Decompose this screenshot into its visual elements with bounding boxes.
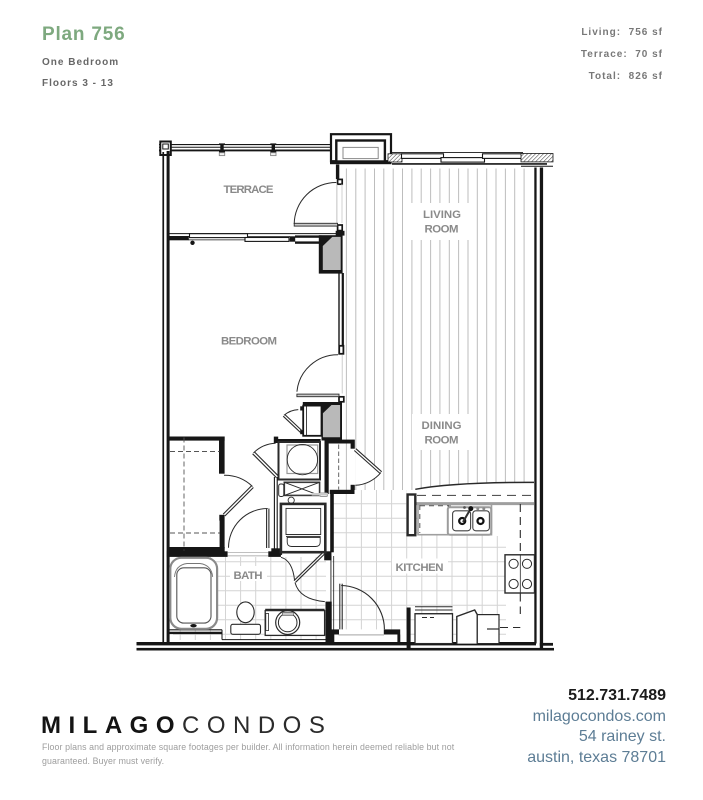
svg-text:DINING: DINING (422, 420, 462, 432)
svg-text:KITCHEN: KITCHEN (396, 562, 444, 574)
svg-text:ROOM: ROOM (425, 224, 459, 236)
svg-text:ROOM: ROOM (425, 434, 459, 446)
svg-text:BATH: BATH (234, 570, 263, 582)
svg-text:TERRACE: TERRACE (224, 184, 274, 196)
svg-text:LIVING: LIVING (423, 209, 461, 221)
svg-text:BEDROOM: BEDROOM (221, 336, 277, 348)
